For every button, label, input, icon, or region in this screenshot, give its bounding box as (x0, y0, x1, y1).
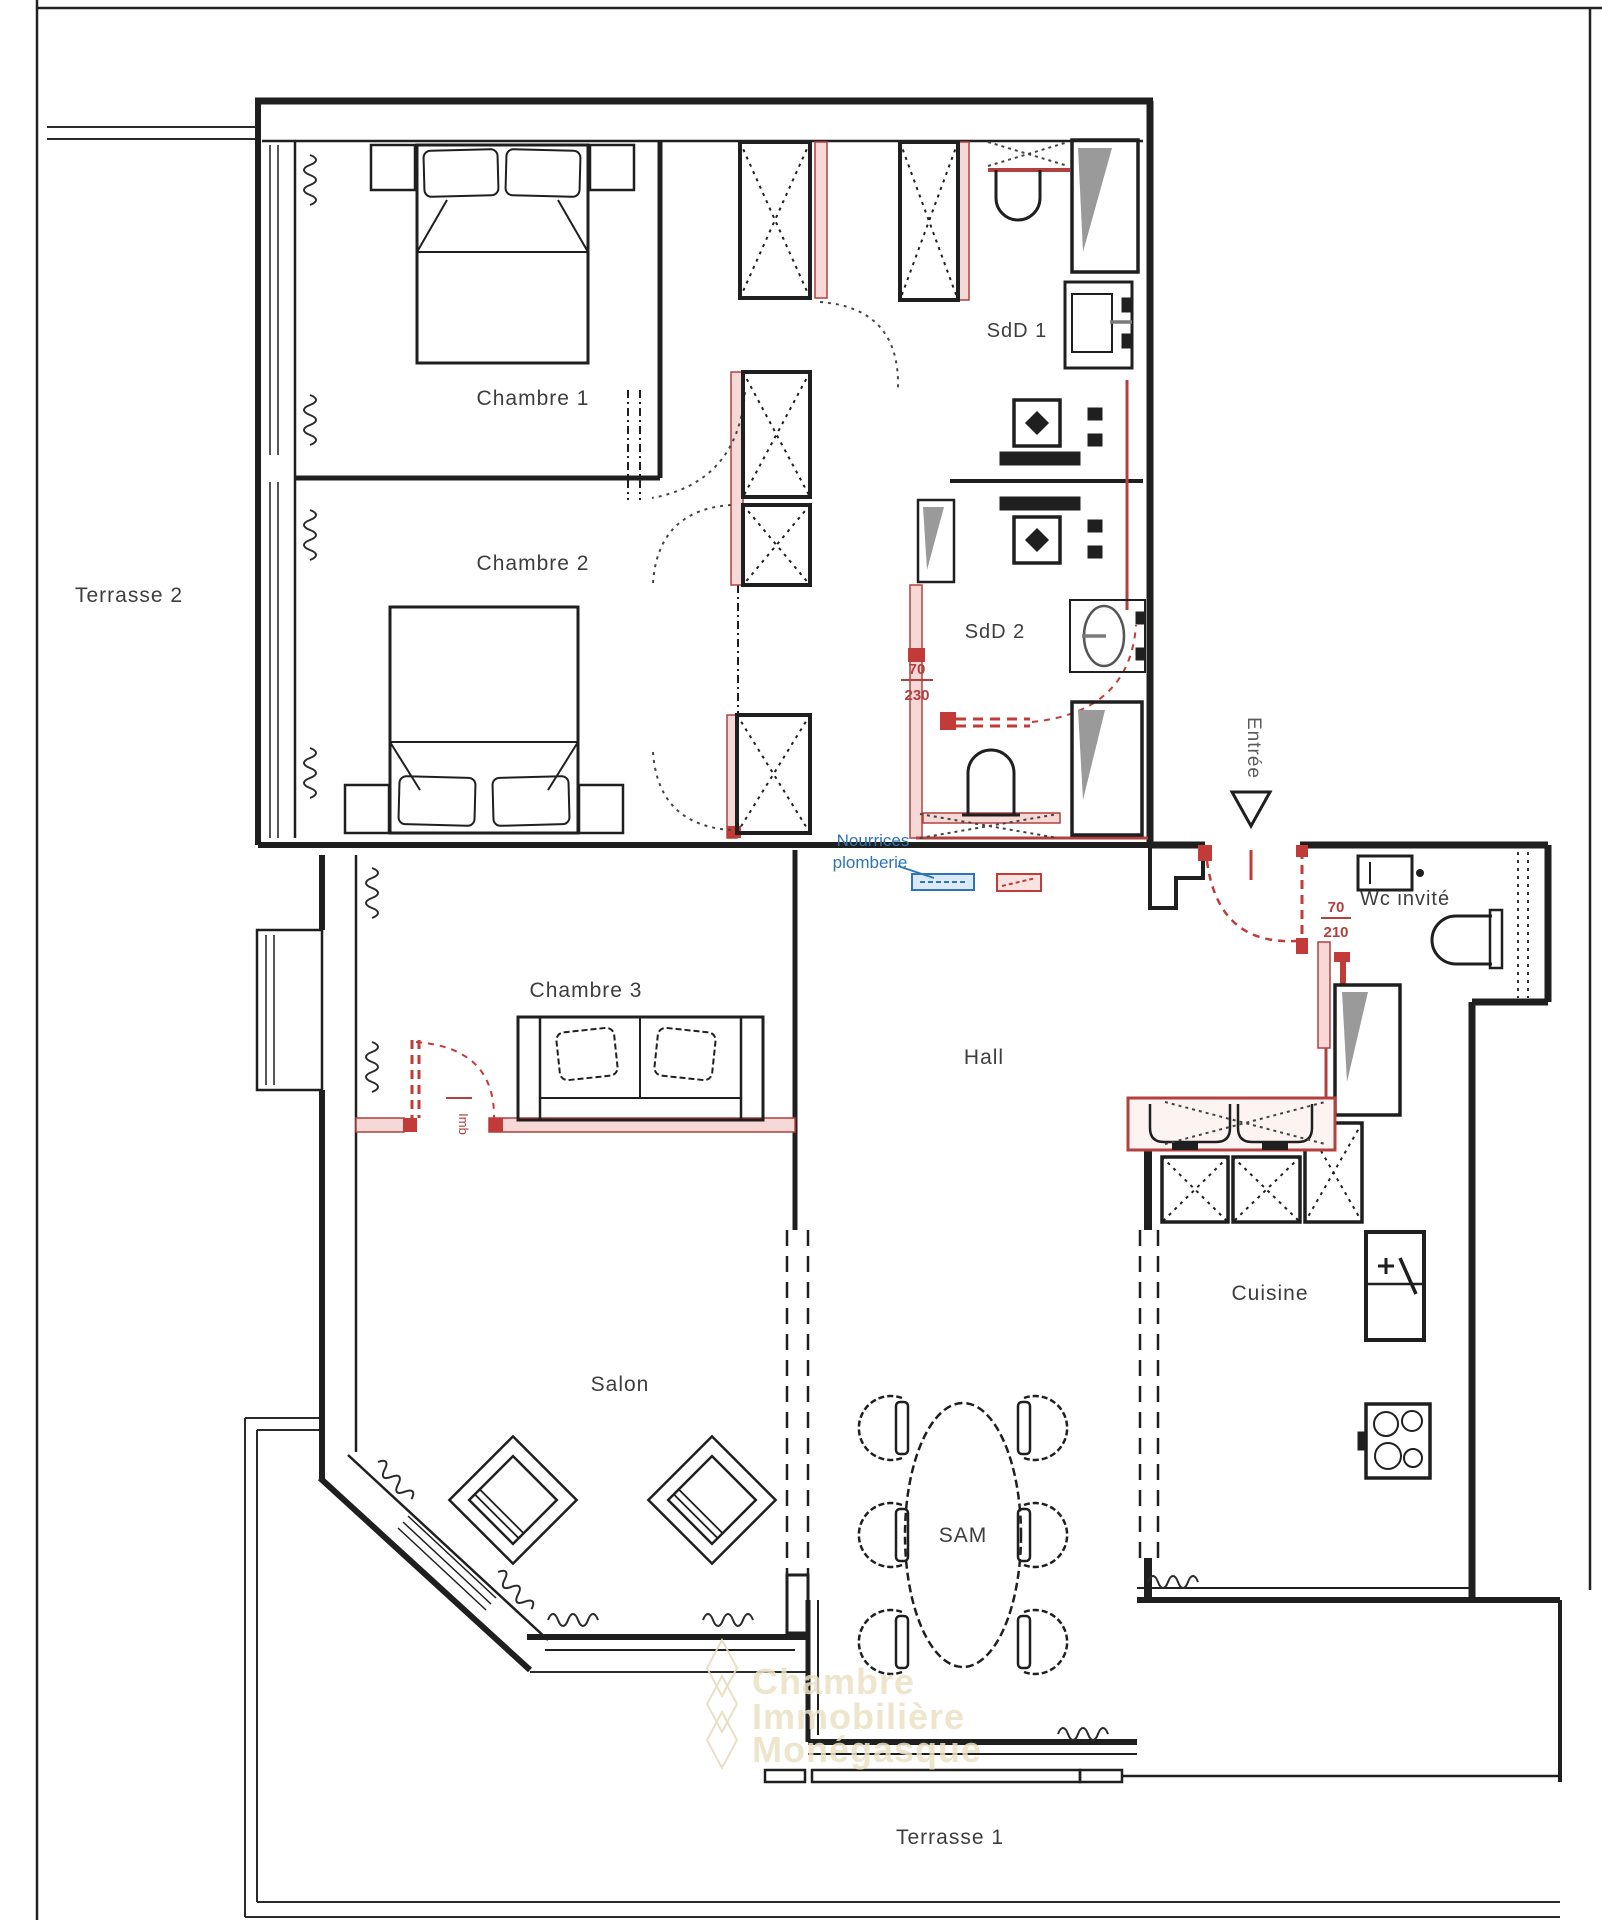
label-sam: SAM (939, 1524, 988, 1547)
washing-machine-icon (1000, 497, 1102, 563)
kitchen-cabinet-icon (1233, 1157, 1300, 1222)
nightstand-icon (345, 785, 389, 833)
armchair-icon (449, 1436, 576, 1563)
toilet-icon (996, 170, 1040, 220)
cooktop-icon (1358, 1404, 1430, 1478)
pillow-icon (492, 776, 569, 826)
watermark: Chambre Immobilière Monégasque (707, 1640, 982, 1770)
window-curtain-icon (494, 1568, 536, 1613)
pillow-icon (556, 1027, 619, 1081)
pillow-icon (398, 776, 475, 826)
closet-icon (743, 505, 810, 585)
window-curtain-icon (1058, 1728, 1108, 1740)
bed-icon (417, 145, 588, 363)
renovation-walls (356, 142, 1350, 1132)
window-curtain-icon (304, 510, 316, 560)
fridge-oven-column-icon (1366, 1232, 1424, 1340)
closet-icon (737, 715, 810, 833)
bedroom2-furniture (345, 607, 623, 833)
label-chambre3: Chambre 3 (530, 979, 643, 1002)
toilet-icon (968, 750, 1014, 815)
plumbing-note: Nourrices plomberie (833, 831, 910, 872)
door-wc-height: 210 (1323, 924, 1348, 941)
door-openings-red (412, 625, 1302, 1120)
pillow-icon (505, 149, 580, 197)
shower-icon (1072, 702, 1142, 835)
window-curtain-icon (366, 868, 378, 918)
label-chambre1: Chambre 1 (477, 387, 590, 410)
plumbing-note-line2: plomberie (833, 853, 908, 872)
armchair-icon (648, 1436, 775, 1563)
nightstand-icon (579, 785, 623, 833)
entrance-arrow-icon (1232, 792, 1270, 826)
window-curtain-icon (703, 1614, 753, 1626)
washbasin-icon (1358, 856, 1424, 890)
floor-plan-page: Chambre Immobilière Monégasque Terrasse … (0, 0, 1602, 1920)
entrance-marker (1232, 792, 1270, 826)
radiator-icon (1518, 852, 1528, 998)
label-chambre2: Chambre 2 (477, 552, 590, 575)
door-sdd2-width: 70 (909, 661, 926, 678)
window-curtain-icon (1148, 1576, 1198, 1588)
shower-icon (1335, 985, 1400, 1115)
nightstand-icon (590, 145, 634, 190)
closet-icon (900, 142, 958, 300)
window-curtain-icon (304, 395, 316, 445)
plumbing-note-line1: Nourrices (837, 831, 910, 850)
label-terrasse1: Terrasse 1 (896, 1826, 1004, 1849)
washbasins (1065, 282, 1424, 890)
label-cuisine: Cuisine (1231, 1282, 1308, 1305)
shower-door-icon (920, 142, 1068, 838)
label-sdd2: SdD 2 (965, 621, 1026, 643)
door-hinge-blocks (403, 648, 1350, 1132)
window-curtain-icon (304, 155, 316, 205)
pillow-icon (654, 1027, 717, 1081)
window-curtain-icon (374, 1458, 416, 1503)
door-swing-arcs (652, 302, 898, 830)
label-terrasse2: Terrasse 2 (75, 584, 183, 607)
shower-icon (918, 500, 954, 582)
washbasin-icon (1065, 282, 1132, 368)
label-imb: Imb (456, 1113, 471, 1135)
closet-icon (740, 142, 810, 298)
door-sdd2-height: 230 (904, 687, 929, 704)
shower-icon (1072, 140, 1138, 272)
label-sdd1: SdD 1 (987, 320, 1048, 342)
pillow-icon (423, 149, 498, 197)
nightstand-icon (371, 145, 415, 190)
label-wc-invite: Wc invité (1360, 888, 1450, 910)
window-curtain-icon (548, 1614, 598, 1626)
plumbing-manifold (898, 866, 1041, 891)
window-curtain-icon (304, 748, 316, 798)
toilet-icon (1432, 910, 1502, 968)
label-hall: Hall (964, 1046, 1004, 1069)
washbasin-icon (1070, 600, 1145, 672)
window-icons (304, 155, 1198, 1740)
watermark-line3: Monégasque (752, 1729, 982, 1770)
window-curtain-icon (366, 1042, 378, 1092)
kitchen-cabinet-icon (1162, 1157, 1228, 1222)
washing-machine-icon (1000, 400, 1102, 465)
label-entree: Entrée (1243, 717, 1264, 779)
kitchen-sink-counter (1128, 1098, 1335, 1150)
bedroom3-furniture (518, 1017, 763, 1120)
floor-plan-drawing: Chambre Immobilière Monégasque Terrasse … (0, 0, 1602, 1920)
salon-furniture (449, 1436, 775, 1563)
bedroom1-furniture (371, 145, 634, 363)
door-wc-width: 70 (1328, 899, 1345, 916)
bed-icon (390, 607, 578, 833)
label-salon: Salon (591, 1373, 650, 1396)
closet-icon (743, 372, 810, 497)
